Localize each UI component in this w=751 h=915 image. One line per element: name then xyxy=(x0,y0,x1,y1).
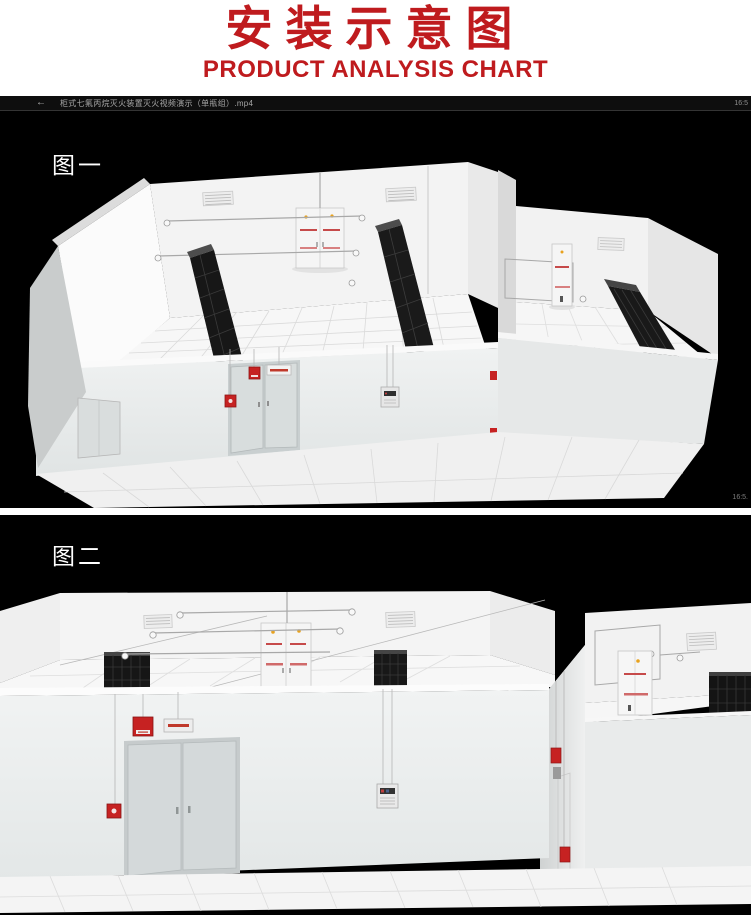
manual-call-point xyxy=(107,804,121,818)
section-divider xyxy=(0,508,751,515)
clock-text: 16:5 xyxy=(734,100,748,107)
fire-alarm-bell xyxy=(551,748,561,763)
figure-1-render xyxy=(0,96,751,508)
figure-1-label: 图一 xyxy=(52,146,104,180)
video-screenshot-1: ← 柜式七氟丙烷灭火装置灭火视频演示（单瓶组）.mp4 16:5 图一 16:5… xyxy=(0,96,751,508)
nozzle-icon xyxy=(177,612,183,618)
nozzle-icon xyxy=(580,296,586,302)
video-screenshot-2: 图二 xyxy=(0,515,751,915)
wall-vent xyxy=(386,611,416,627)
nozzle-icon xyxy=(353,250,359,256)
fire-alarm-bell xyxy=(133,717,153,736)
front-wall xyxy=(585,715,751,893)
wall-vent xyxy=(598,238,624,251)
fire-cabinet xyxy=(549,244,575,310)
gas-release-sign xyxy=(164,719,193,732)
wall-vent xyxy=(144,615,172,629)
page-title: 安装示意图 xyxy=(0,3,751,56)
nozzle-icon xyxy=(164,220,170,226)
nozzle-icon xyxy=(122,653,128,659)
figure-2-render xyxy=(0,515,751,915)
front-wall xyxy=(0,690,549,880)
fire-cabinet xyxy=(618,651,652,715)
wall-vent xyxy=(687,632,717,650)
nozzle-icon xyxy=(349,280,355,286)
server-rack-row xyxy=(374,650,407,687)
server-rack-row xyxy=(709,672,751,717)
page-subtitle: PRODUCT ANALYSIS CHART xyxy=(0,56,751,84)
manual-call-point xyxy=(560,847,570,862)
gas-control-panel xyxy=(381,387,399,407)
fire-alarm-bell xyxy=(249,367,260,379)
timestamp-bottom-right: 16:5. xyxy=(732,494,748,501)
nozzle-icon xyxy=(677,655,683,661)
room-main-interior xyxy=(0,591,555,693)
back-arrow-icon[interactable]: ← xyxy=(36,97,46,108)
fire-cabinet xyxy=(257,623,315,692)
front-exterior xyxy=(0,684,549,880)
figure-2-label: 图二 xyxy=(52,537,104,571)
room-right xyxy=(585,603,751,893)
wall-device xyxy=(553,767,561,779)
gas-control-panel xyxy=(377,784,398,808)
nozzle-icon xyxy=(359,215,365,221)
manual-call-point xyxy=(225,395,236,407)
gas-release-sign xyxy=(267,365,291,375)
nozzle-icon xyxy=(150,632,156,638)
page: 安装示意图 PRODUCT ANALYSIS CHART ← 柜式七氟丙烷灭火装… xyxy=(0,0,751,915)
nozzle-icon xyxy=(337,628,343,634)
player-topbar: ← 柜式七氟丙烷灭火装置灭火视频演示（单瓶组）.mp4 16:5 xyxy=(0,96,751,111)
wall-vent xyxy=(203,191,234,206)
entry-double-door xyxy=(124,737,240,880)
wall-vent xyxy=(386,187,417,202)
nozzle-icon xyxy=(155,255,161,261)
nozzle-icon xyxy=(349,609,355,615)
right-wall xyxy=(468,162,498,308)
header: 安装示意图 PRODUCT ANALYSIS CHART xyxy=(0,0,751,96)
video-filename: 柜式七氟丙烷灭火装置灭火视频演示（单瓶组）.mp4 xyxy=(60,98,253,109)
